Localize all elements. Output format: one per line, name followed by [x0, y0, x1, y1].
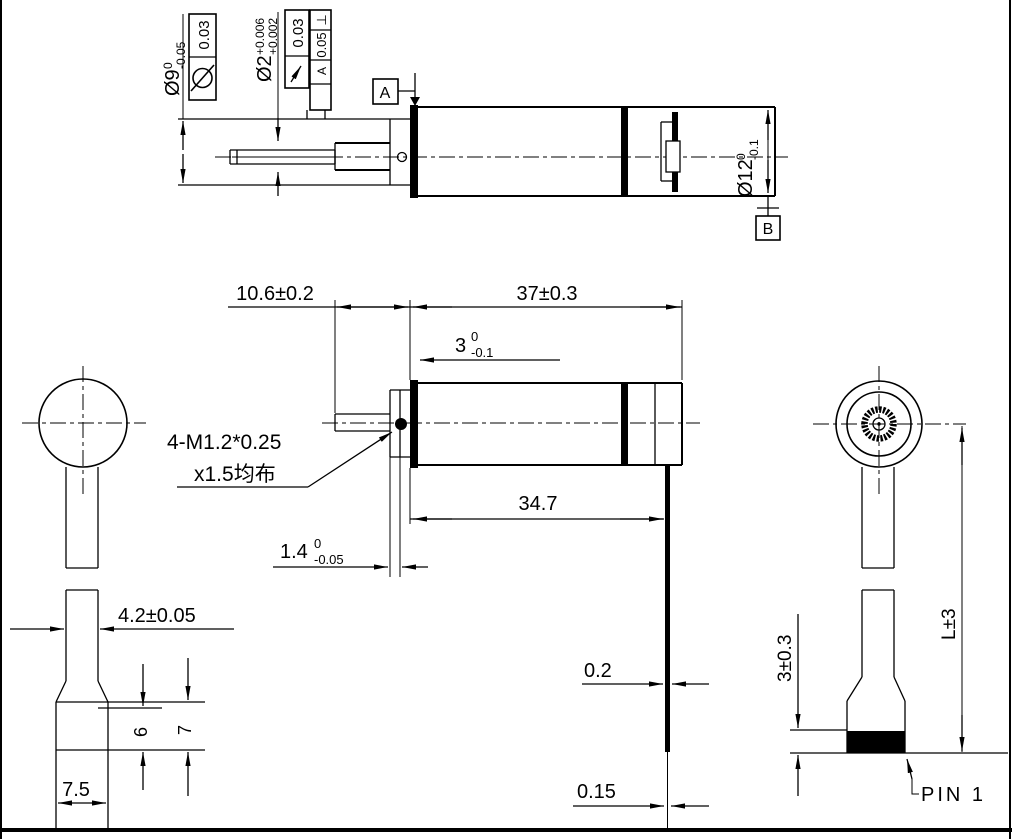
dim-conn-h-outer: 7	[175, 725, 195, 735]
dimension-fpc-thickness: 0.2	[582, 660, 709, 684]
dimension-gear-length: 34.7	[410, 468, 664, 524]
dim-flange-value: 1.4	[280, 541, 308, 563]
dimension-phi2: Ø2 +0.006 +0.002	[253, 12, 280, 196]
dim-total-length: L±3	[939, 608, 960, 640]
concentricity-icon	[191, 65, 214, 91]
rear-bearing	[666, 141, 680, 172]
gearbox-motor-joint	[621, 107, 628, 196]
dim-fpc-thickness: 0.2	[584, 660, 612, 682]
dim-gear-length: 34.7	[519, 493, 558, 515]
engineering-drawing: Ø9 0 -0.05 0.03 Ø2 +0.006 +0.002 0.03	[0, 0, 1012, 839]
circular-runout-icon	[291, 66, 301, 82]
screw-callout: 4-M1.2*0.25 x1.5均布	[167, 431, 392, 487]
dim-phi9-upper-tol: 0	[161, 62, 175, 69]
dim-phi9-value: Ø9	[162, 69, 184, 96]
dim-flange-lower-tol: -0.05	[314, 552, 344, 567]
dim-fpc-thickness2: 0.15	[577, 781, 616, 803]
dimension-boss-length: 10.6±0.2	[228, 283, 410, 413]
perpendicularity-icon: ⊥	[314, 14, 329, 25]
fpc-strip-side	[665, 465, 670, 829]
fcf-frame1: 0.03	[189, 14, 216, 100]
dimension-body-length: 37±0.3	[410, 283, 682, 380]
dim-conn-width: 7.5	[62, 779, 90, 801]
dim-phi2-value: Ø2	[254, 55, 276, 82]
dimension-phi12: Ø12 0 -0.1	[734, 110, 768, 197]
pin1-leader	[907, 759, 912, 779]
pin1-callout: PIN 1	[907, 759, 986, 806]
dimension-conn-h3: 3±0.3	[775, 614, 798, 796]
screw-hole	[395, 418, 407, 430]
sheet-border	[0, 0, 1012, 839]
datum-a-triangle	[410, 97, 420, 106]
side-view-middle	[322, 380, 700, 468]
dimension-conn-width: 7.5	[58, 779, 106, 803]
dim-body-length: 37±0.3	[516, 283, 577, 305]
dimension-face-width: 3 0 -0.1	[420, 329, 560, 360]
fcf-frame3-value: 0.05	[314, 32, 329, 57]
pin1-label: PIN 1	[921, 784, 986, 806]
datum-a-flag: A	[373, 73, 420, 106]
datum-b-flag: B	[756, 196, 780, 240]
fcf-frame3-datum: A	[315, 67, 329, 75]
front-face-plate	[410, 105, 418, 198]
screw-callout-line1: 4-M1.2*0.25	[167, 431, 281, 454]
dim-phi2-lower-tol: +0.002	[266, 18, 280, 55]
fcf-frame3: ⊥ 0.05 A	[307, 10, 331, 119]
dim-conn-h3: 3±0.3	[775, 635, 796, 682]
fcf-frame2: 0.03	[285, 10, 309, 88]
dim-phi12-value: Ø12	[735, 159, 757, 197]
dim-face-upper-tol: 0	[471, 329, 478, 344]
dim-strip-width: 4.2±0.05	[118, 605, 196, 627]
dimension-total-length: L±3	[939, 426, 962, 752]
dim-face-value: 3	[455, 335, 466, 357]
dim-conn-h-inner: 6	[131, 727, 151, 737]
rear-end-view	[790, 366, 1008, 753]
screw-leader	[308, 432, 392, 487]
fcf-frame1-value: 0.03	[196, 20, 213, 49]
dim-flange-upper-tol: 0	[314, 536, 321, 551]
dim-phi12-upper-tol: 0	[734, 153, 748, 160]
dimension-phi9: Ø9 0 -0.05	[161, 14, 188, 183]
dimension-conn-heights: 6 7	[131, 658, 195, 796]
dim-face-lower-tol: -0.1	[471, 345, 493, 360]
drawing-sheet: Ø9 0 -0.05 0.03 Ø2 +0.006 +0.002 0.03	[0, 0, 1012, 839]
datum-b-label: B	[763, 221, 774, 238]
dim-boss-length: 10.6±0.2	[236, 283, 314, 305]
dim-phi9-lower-tol: -0.05	[174, 41, 188, 69]
screw-callout-line2: x1.5均布	[194, 463, 276, 486]
dimension-strip-width: 4.2±0.05	[10, 605, 234, 629]
dimension-fpc-thickness2: 0.15	[573, 781, 709, 806]
dim-phi2-upper-tol: +0.006	[253, 18, 267, 55]
fcf-frame2-value: 0.03	[290, 18, 307, 47]
dim-phi12-lower-tol: -0.1	[747, 139, 761, 160]
datum-a-label: A	[380, 85, 391, 102]
connector-contact-block	[847, 731, 905, 753]
dimension-flange-thickness: 1.4 0 -0.05	[273, 457, 428, 577]
side-view-top	[178, 105, 788, 198]
